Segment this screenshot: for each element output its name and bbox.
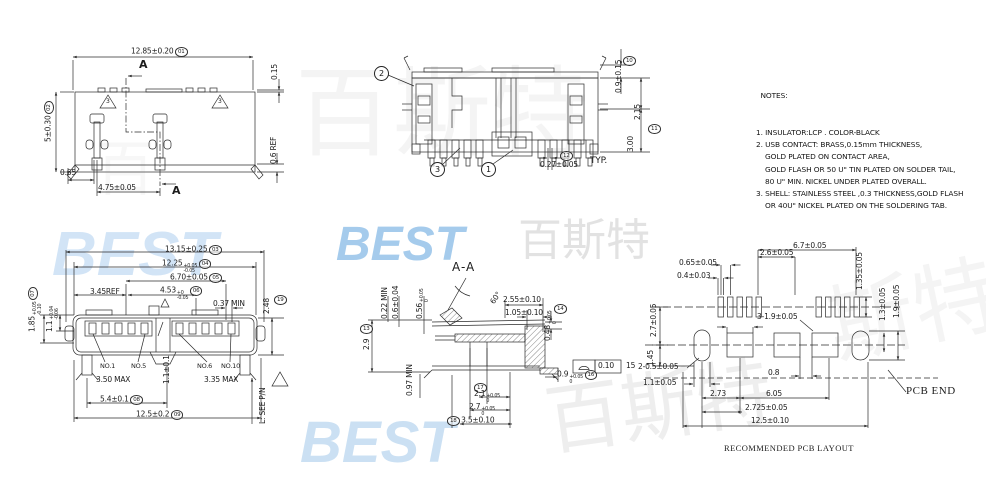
dim-pads3: 3-1.9±0.05 (757, 313, 797, 321)
dim-gap2: 0.56+0.050 (416, 288, 430, 319)
note-flag-number: 3 (106, 99, 110, 106)
revision-triangle (272, 372, 288, 386)
dim-latch: 2.55±0.10 (503, 296, 541, 304)
dim-id: 09 (171, 410, 184, 420)
typ-suffix: TYP. (590, 157, 607, 167)
dim-max: 3.35 MAX (204, 376, 238, 384)
dim-273: 2.73 (710, 390, 726, 398)
dim-overall-width: 12.85±0.2001 (131, 47, 188, 57)
notes-line: GOLD FLASH OR 50 U" TIN PLATED ON SOLDER… (756, 164, 963, 176)
dim-key-width: 1.1±0.1 (163, 355, 171, 384)
balloon-1: 1 (481, 162, 496, 177)
dim-latch2: 1.05±0.10 (505, 309, 543, 317)
dim-id: 08 (130, 395, 143, 405)
dim-cover-height: 0.9±0.15 (615, 60, 623, 93)
notes-line: 3. SHELL: STAINLESS STEEL ,0.3 THICKNESS… (756, 188, 963, 200)
pin-label: NO.10 (221, 363, 240, 370)
dim-pad-span2: 2.6±0.05 (760, 249, 793, 257)
tolerance-stack: +0.05-0.10 (33, 301, 43, 315)
dim-pad-span: 6.7±0.05 (793, 242, 826, 250)
pin-label: NO.1 (100, 363, 115, 370)
dim-post-outer: 12.5±0.209 (136, 410, 183, 420)
dim-section-height: 2.9 (363, 339, 371, 350)
top-view-linework (56, 57, 284, 196)
dim-2725: 2.725±0.05 (745, 404, 787, 412)
dim-id: 05 (209, 273, 222, 283)
dim-min2: 0.22 MIN (381, 287, 389, 319)
pcb-end-label: PCB END (906, 385, 956, 397)
dim-row-gap: 2.7±0.05 (650, 304, 658, 337)
dim-ref: 3.45REF (90, 288, 120, 296)
notes-line: 80 U" MIN. NICKEL UNDER PLATED OVERALL. (756, 176, 963, 188)
dim-605: 6.05 (766, 390, 782, 398)
dim-overall-depth: 5±0.3002 (44, 101, 54, 142)
dim-id: 16 (585, 370, 598, 380)
dim-id: 11 (648, 124, 661, 134)
dim-depth3: 183.5±0.10 (447, 416, 494, 426)
dim-key-offset: 4.53+0-0.0506 (160, 286, 202, 301)
dim-tab-offset: 0.65 (60, 169, 76, 177)
dim-min3: 0.97 MIN (406, 364, 414, 396)
dim-min-gap: 0.37 MIN (213, 300, 245, 308)
dim-slots2: 2-0.5±0.05 (638, 363, 678, 371)
dim-id: 13 (360, 324, 373, 334)
dim-body-height: 3.00 (627, 136, 635, 152)
dim-id: 03 (209, 245, 222, 255)
dim-slot-w: 1.1±0.05 (643, 379, 676, 387)
notes-title: NOTES: (756, 90, 963, 102)
section-arrow-label-bottom: A (172, 185, 180, 197)
notes-line: OR 40U" NICKEL PLATED ON THE SOLDERING T… (756, 200, 963, 212)
engineering-drawing-sheet: BESTBEST百斯特百斯特BEST百斯特斯特百 (0, 0, 986, 493)
dim-ref-height: 0.6 REF (270, 137, 278, 164)
dim-id: 04 (199, 259, 212, 269)
dim-shell-width: 12.25+0.05-0.0504 (162, 259, 211, 274)
dim-id: 02 (44, 101, 54, 114)
pin-label: NO.5 (131, 363, 146, 370)
dim-id: 14 (554, 304, 567, 314)
tolerance-stack: +0-0.05 (177, 291, 188, 301)
dim-id: 18 (447, 416, 460, 426)
dim-lip: 1.1+0.04-0.06 (46, 306, 60, 332)
dim-hole-h2: 1.3±0.05 (879, 288, 887, 321)
note-flag-number: 3 (218, 99, 222, 106)
dim-height: 2.48 (263, 298, 271, 314)
notes-block: NOTES: 1. INSULATOR:LCP . COLOR-BLACK2. … (756, 66, 963, 237)
tolerance-stack: +0.04-0.06 (50, 306, 60, 320)
front-elevation-linework (388, 49, 650, 170)
section-title: A-A (452, 261, 475, 274)
fcf-value: 0.10 (598, 362, 614, 370)
receptacle-face-linework (40, 250, 288, 424)
dim-step-height: 2.15 (634, 104, 642, 120)
balloon-3: 3 (430, 162, 445, 177)
tolerance-stack: +0.050 (569, 375, 583, 385)
dim-id: 06 (190, 286, 203, 296)
dim-pad-height: 1.35±0.05 (856, 252, 864, 290)
dim-id: 10 (623, 56, 636, 66)
dim-tail-width: 0.27±0.05 (540, 161, 578, 169)
dim-id: 19 (274, 295, 287, 305)
pin-label: NO.6 (197, 363, 212, 370)
dim-pad-pitch: 0.65±0.05 (679, 259, 717, 267)
pcb-caption: RECOMMENDED PCB LAYOUT (724, 444, 854, 453)
balloon-2: 2 (374, 66, 389, 81)
dim-08: 0.8 (768, 369, 779, 377)
dim-lip2: 0.48+0.050 (544, 310, 558, 341)
dim-id: 07 (28, 287, 38, 300)
dim-tab-height: 0.9+0.05016 (557, 370, 597, 385)
fcf-ref: 15 (626, 362, 635, 370)
dim-max: 3.50 MAX (96, 376, 130, 384)
dim-pad-width: 0.4±0.03 (677, 272, 710, 280)
dim-tab-pitch: 4.75±0.05 (98, 184, 136, 192)
dim-125: 12.5±0.10 (751, 417, 789, 425)
notes-line: GOLD PLATED ON CONTACT AREA, (756, 151, 963, 163)
notes-lines: 1. INSULATOR:LCP . COLOR-BLACK2. USB CON… (756, 127, 963, 212)
dim-id: 01 (175, 47, 188, 57)
section-arrow-label-top: A (139, 59, 147, 71)
dim-port-span: 6.70±0.0505 (170, 273, 222, 283)
notes-line: 1. INSULATOR:LCP . COLOR-BLACK (756, 127, 963, 139)
dim-hole-h: 1.9±0.05 (893, 285, 901, 318)
length-note: L: SEE P/N (259, 388, 267, 424)
dim-flange-width: 13.15±0.2503 (165, 245, 222, 255)
tolerance-stack: +0.050 (420, 288, 430, 302)
dim-post-span: 5.4±0.108 (100, 395, 143, 405)
dim-contact: 0.6±0.04 (392, 286, 400, 319)
notes-line: 2. USB CONTACT: BRASS,0.15mm THICKNESS, (756, 139, 963, 151)
dim-shell-band: 1.85+0.05-0.1007 (28, 287, 43, 332)
dim-shell-lip: 0.15 (271, 64, 279, 80)
